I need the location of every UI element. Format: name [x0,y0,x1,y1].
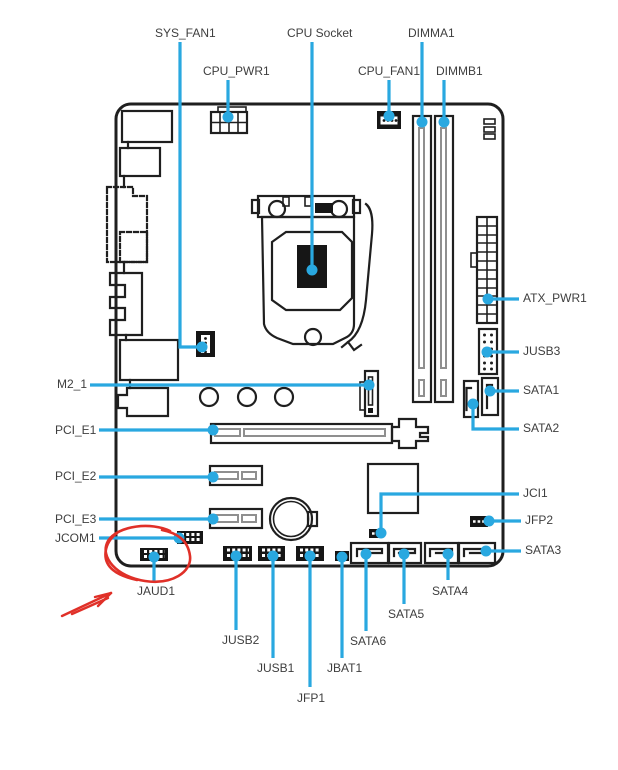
m2-standoff-holes [200,388,293,406]
label-sys-fan1: SYS_FAN1 [155,27,216,40]
cmos-battery [270,498,317,540]
label-sata6: SATA6 [350,635,386,648]
label-sata3: SATA3 [525,544,561,557]
label-pci-e3: PCI_E3 [55,513,96,526]
sata-ports-vertical [464,378,498,417]
label-pci-e2: PCI_E2 [55,470,96,483]
label-sata4: SATA4 [432,585,468,598]
board-outline [116,104,503,566]
label-dimmb1: DIMMB1 [436,65,483,78]
label-dimma1: DIMMA1 [408,27,455,40]
label-jci1: JCI1 [523,487,548,500]
motherboard-diagram: SYS_FAN1 CPU_PWR1 CPU Socket DIMMA1 CPU_… [0,0,618,770]
debug-led-bars [484,119,495,139]
label-jusb3: JUSB3 [523,345,560,358]
label-cpu-pwr1: CPU_PWR1 [203,65,270,78]
label-atx-pwr1: ATX_PWR1 [523,292,587,305]
dimm-slots [413,116,453,402]
label-cpu-socket: CPU Socket [287,27,352,40]
label-m2-1: M2_1 [57,378,87,391]
label-jusb2: JUSB2 [222,634,259,647]
label-sata5: SATA5 [388,608,424,621]
label-cpu-fan1: CPU_FAN1 [358,65,420,78]
red-arrow-annotation [62,593,111,616]
optional-port-dashed [107,187,147,262]
atx-power-connector [471,217,497,323]
label-jfp2: JFP2 [525,514,553,527]
label-sata2: SATA2 [523,422,559,435]
label-jbat1: JBAT1 [327,662,362,675]
label-sata1: SATA1 [523,384,559,397]
pcie-x16-slot [211,419,428,448]
sata-ports-bottom [351,543,495,563]
leader-lines-top [180,42,444,347]
m2-slot [360,371,378,416]
label-pci-e1: PCI_E1 [55,424,96,437]
label-jaud1: JAUD1 [137,585,175,598]
label-jusb1: JUSB1 [257,662,294,675]
label-jcom1: JCOM1 [55,532,96,545]
rear-io-ports [107,111,178,416]
chipset-square [368,464,418,513]
leader-lines-bottom [154,555,448,687]
label-jfp1: JFP1 [297,692,325,705]
